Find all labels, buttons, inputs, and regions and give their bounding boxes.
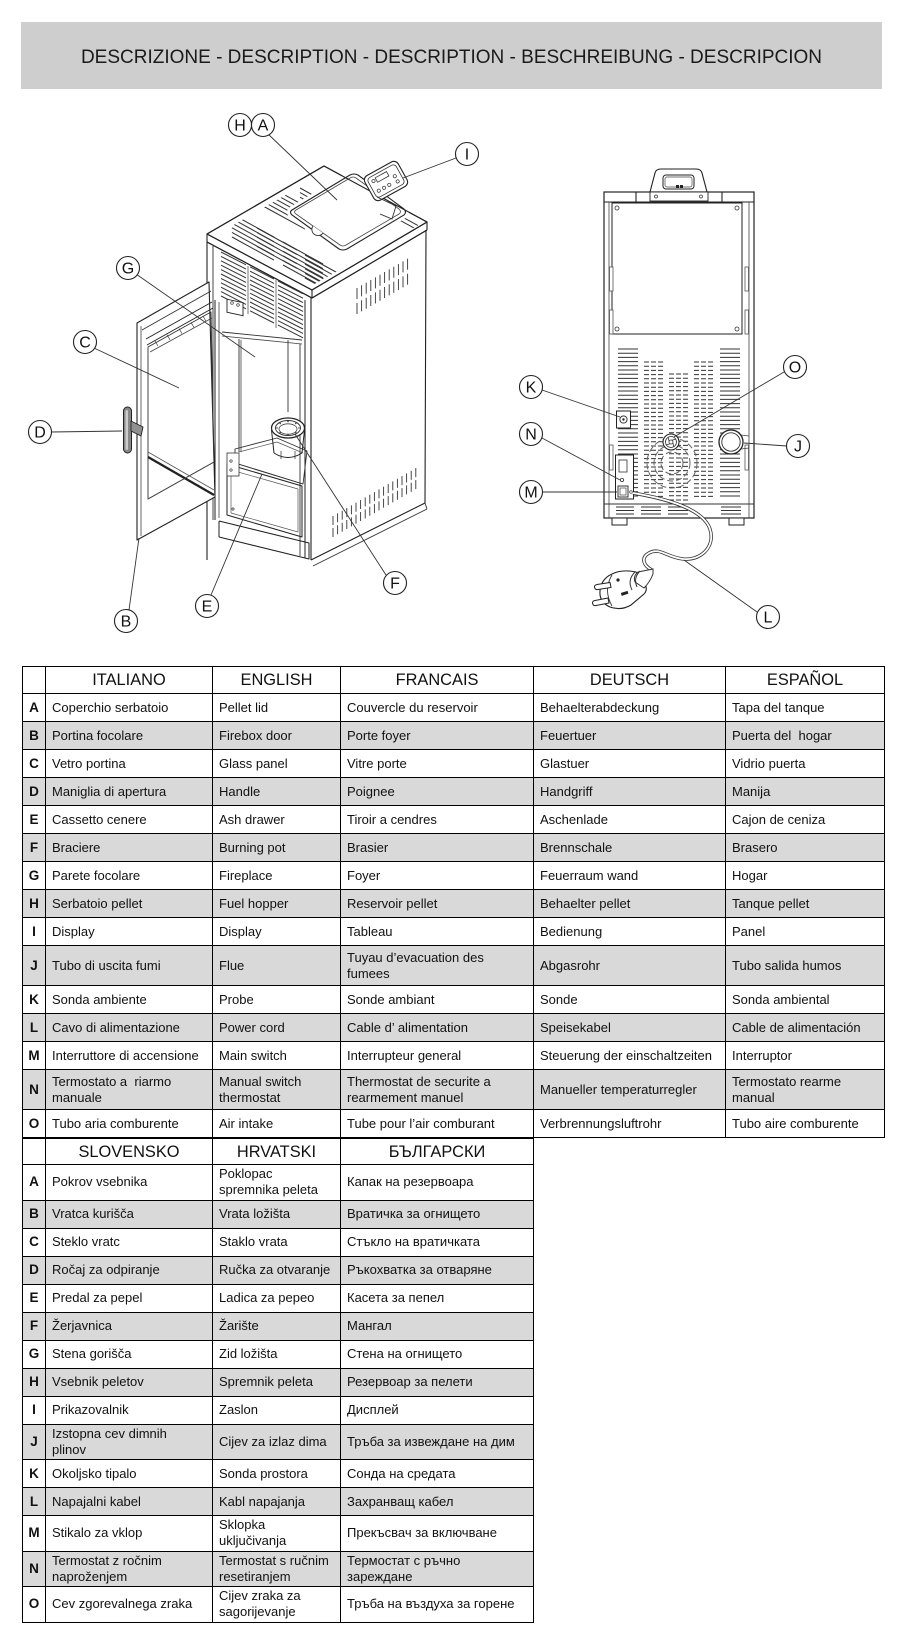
svg-text:H: H — [234, 118, 246, 135]
svg-text:M: M — [524, 485, 537, 502]
svg-text:F: F — [390, 576, 400, 593]
svg-text:I: I — [465, 147, 469, 164]
svg-text:O: O — [789, 360, 801, 377]
svg-text:N: N — [525, 427, 537, 444]
svg-text:D: D — [34, 425, 46, 442]
svg-text:C: C — [79, 335, 91, 352]
svg-text:E: E — [202, 599, 213, 616]
svg-text:G: G — [122, 261, 134, 278]
svg-text:A: A — [258, 118, 269, 135]
svg-text:K: K — [526, 380, 537, 397]
svg-text:B: B — [121, 614, 132, 631]
svg-text:L: L — [764, 610, 773, 627]
svg-text:J: J — [794, 439, 802, 456]
